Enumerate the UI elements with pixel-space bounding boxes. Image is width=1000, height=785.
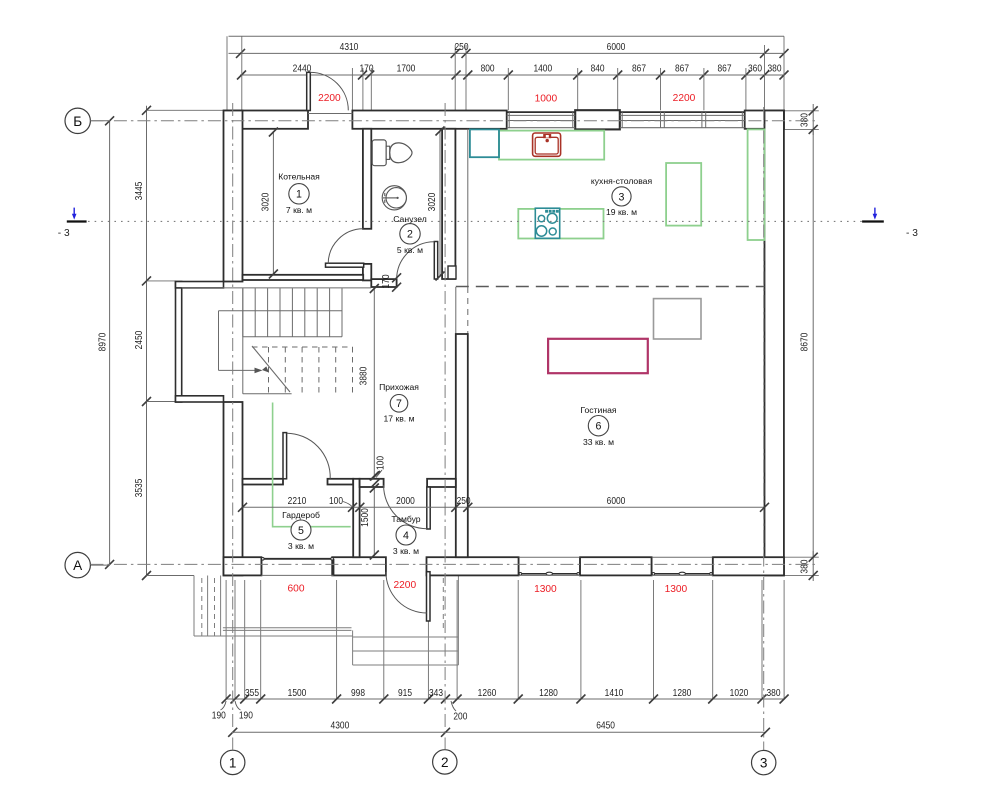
- svg-text:380: 380: [767, 688, 781, 699]
- svg-text:33 кв. м: 33 кв. м: [583, 437, 614, 447]
- svg-text:Санузел: Санузел: [393, 214, 426, 224]
- svg-text:Тамбур: Тамбур: [391, 514, 420, 524]
- svg-text:3445: 3445: [134, 181, 145, 200]
- svg-text:1400: 1400: [533, 64, 552, 75]
- svg-text:343: 343: [429, 688, 443, 699]
- svg-text:3 кв. м: 3 кв. м: [393, 546, 419, 556]
- svg-text:6: 6: [596, 421, 602, 433]
- svg-text:17 кв. м: 17 кв. м: [384, 413, 415, 423]
- svg-text:2210: 2210: [288, 496, 307, 507]
- svg-text:380: 380: [768, 64, 782, 75]
- svg-text:1280: 1280: [673, 688, 692, 699]
- svg-text:Котельная: Котельная: [278, 172, 320, 182]
- svg-text:4: 4: [403, 530, 409, 542]
- svg-text:2: 2: [441, 755, 449, 770]
- svg-text:8970: 8970: [98, 332, 109, 351]
- svg-text:4300: 4300: [331, 720, 350, 731]
- svg-text:1410: 1410: [605, 688, 624, 699]
- svg-text:- 3: - 3: [906, 228, 918, 239]
- svg-text:3020: 3020: [427, 192, 438, 211]
- svg-text:170: 170: [381, 274, 392, 288]
- svg-text:3 кв. м: 3 кв. м: [288, 541, 314, 551]
- svg-text:3: 3: [760, 756, 768, 771]
- svg-text:250: 250: [455, 42, 469, 53]
- svg-text:190: 190: [212, 710, 226, 721]
- svg-text:360: 360: [748, 64, 762, 75]
- svg-text:кухня-столовая: кухня-столовая: [591, 176, 653, 186]
- svg-text:4310: 4310: [340, 42, 359, 53]
- svg-text:6000: 6000: [607, 42, 626, 53]
- svg-text:1: 1: [229, 755, 237, 770]
- svg-text:2200: 2200: [673, 93, 696, 104]
- svg-text:915: 915: [398, 688, 412, 699]
- svg-text:1280: 1280: [539, 688, 558, 699]
- svg-text:Прихожая: Прихожая: [379, 382, 419, 392]
- svg-text:3: 3: [619, 191, 625, 203]
- svg-text:1300: 1300: [665, 584, 688, 595]
- svg-text:3020: 3020: [261, 192, 272, 211]
- svg-text:1020: 1020: [730, 688, 749, 699]
- svg-text:5: 5: [298, 525, 304, 537]
- svg-text:7: 7: [396, 398, 402, 410]
- svg-text:380: 380: [800, 113, 811, 127]
- svg-text:1700: 1700: [397, 64, 416, 75]
- svg-text:1260: 1260: [478, 688, 497, 699]
- svg-text:200: 200: [453, 711, 467, 722]
- svg-text:2200: 2200: [318, 93, 341, 104]
- svg-text:3880: 3880: [359, 366, 370, 385]
- svg-text:998: 998: [351, 688, 365, 699]
- svg-text:Гостиная: Гостиная: [580, 405, 616, 415]
- svg-text:7 кв. м: 7 кв. м: [286, 205, 312, 215]
- svg-text:867: 867: [675, 64, 689, 75]
- svg-text:А: А: [73, 558, 83, 573]
- svg-text:1300: 1300: [534, 584, 557, 595]
- svg-text:170: 170: [360, 64, 374, 75]
- svg-text:100: 100: [329, 496, 343, 507]
- svg-text:1: 1: [296, 189, 302, 201]
- svg-text:1500: 1500: [360, 508, 371, 527]
- svg-text:867: 867: [632, 64, 646, 75]
- svg-text:2: 2: [407, 229, 413, 241]
- svg-text:250: 250: [457, 496, 471, 507]
- svg-text:6000: 6000: [607, 496, 626, 507]
- svg-text:8670: 8670: [800, 332, 811, 351]
- svg-text:190: 190: [239, 710, 253, 721]
- svg-text:1000: 1000: [535, 94, 558, 105]
- svg-text:Б: Б: [73, 114, 82, 129]
- svg-text:867: 867: [718, 64, 732, 75]
- svg-text:840: 840: [591, 64, 605, 75]
- svg-text:380: 380: [800, 559, 811, 573]
- svg-text:19 кв. м: 19 кв. м: [606, 207, 637, 217]
- svg-text:100: 100: [376, 456, 387, 470]
- svg-text:3535: 3535: [134, 478, 145, 497]
- svg-text:2200: 2200: [393, 580, 416, 591]
- svg-text:600: 600: [288, 583, 305, 594]
- svg-text:6450: 6450: [596, 720, 615, 731]
- svg-text:800: 800: [481, 64, 495, 75]
- svg-text:355: 355: [245, 688, 259, 699]
- svg-text:2450: 2450: [134, 330, 145, 349]
- svg-text:2000: 2000: [396, 496, 415, 507]
- svg-text:1500: 1500: [288, 688, 307, 699]
- svg-text:- 3: - 3: [58, 228, 70, 239]
- svg-text:Гардероб: Гардероб: [282, 510, 320, 520]
- svg-text:5 кв. м: 5 кв. м: [397, 245, 423, 255]
